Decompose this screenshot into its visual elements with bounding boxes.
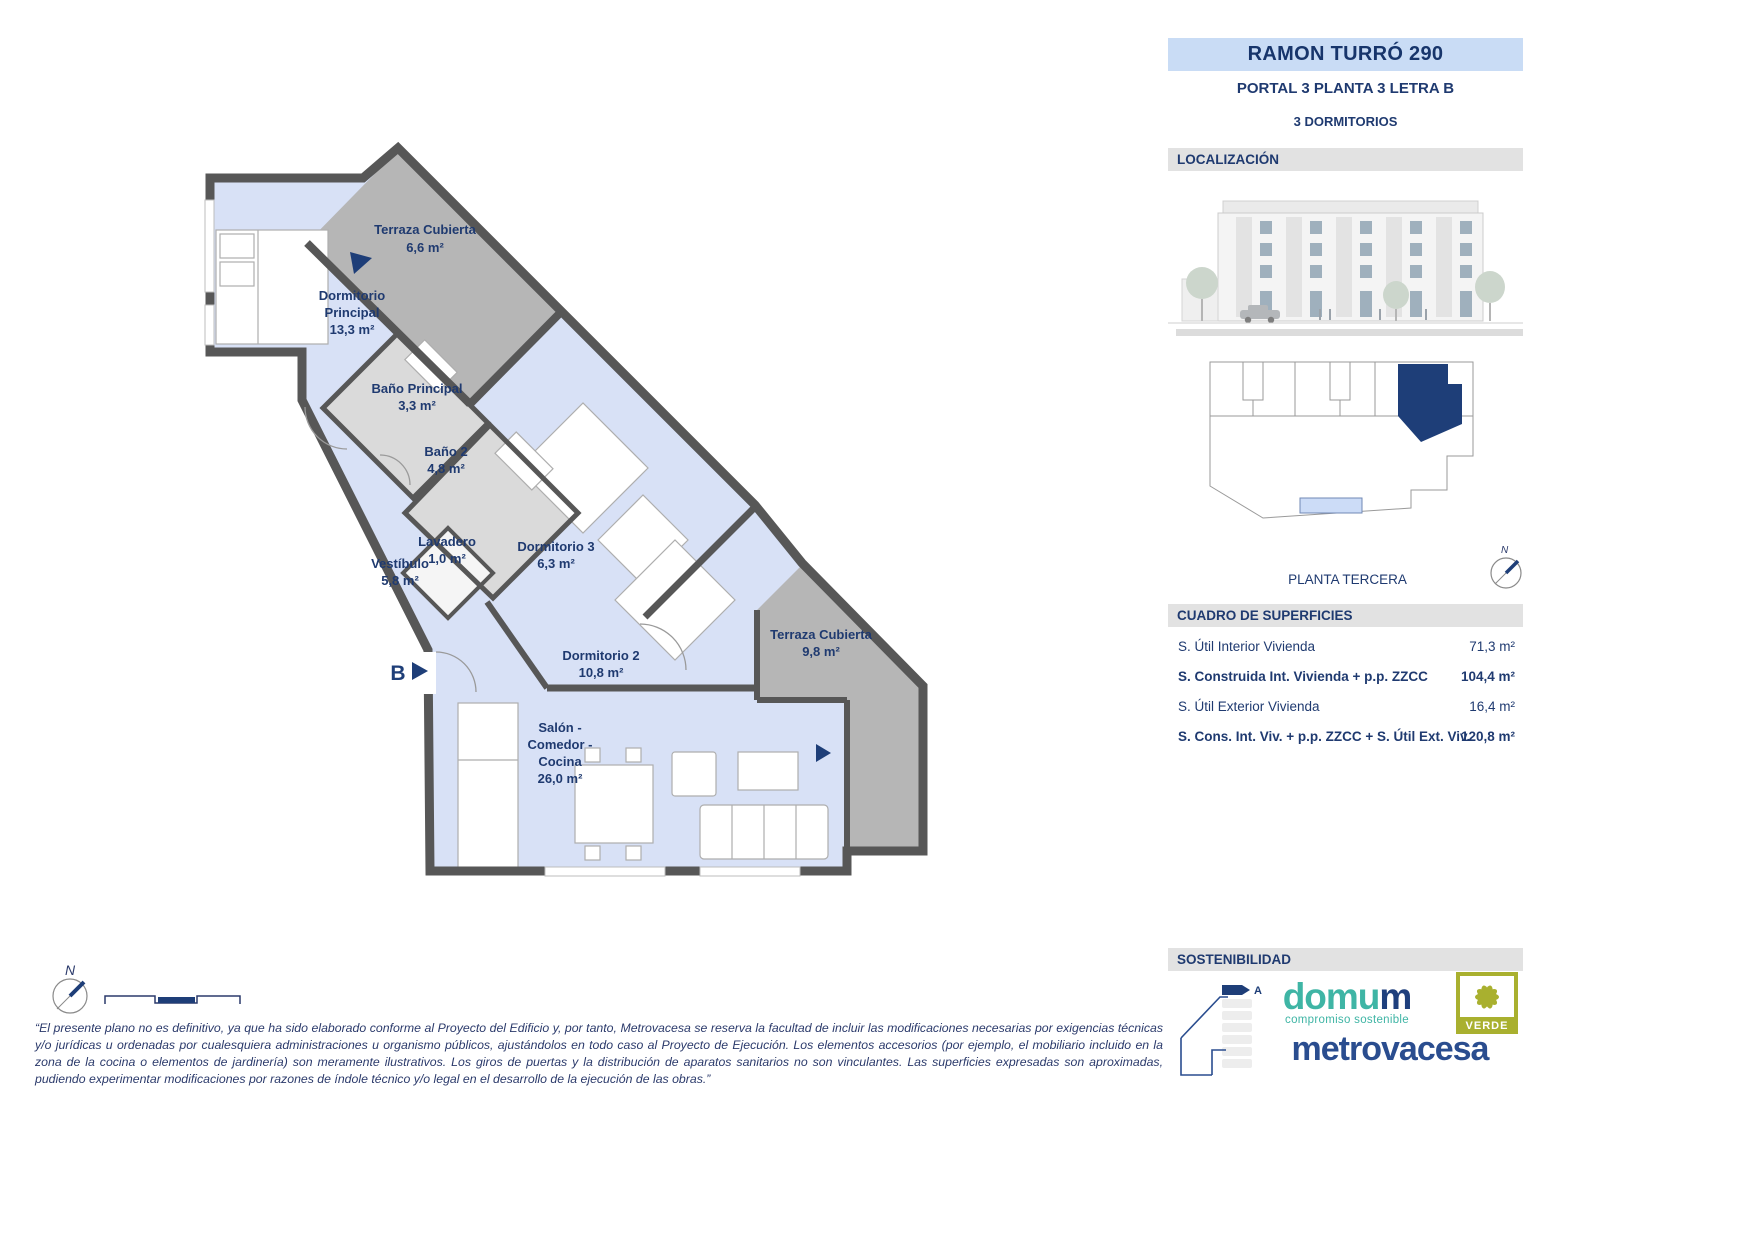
room-label: Terraza Cubierta <box>770 627 872 642</box>
page-title: RAMON TURRÓ 290 <box>1168 38 1523 71</box>
section-header-localizacion: LOCALIZACIÓN <box>1168 148 1523 171</box>
surface-label: S. Útil Interior Vivienda <box>1178 632 1315 662</box>
room-label: Dormitorio <box>319 288 386 303</box>
room-label: Terraza Cubierta <box>374 222 476 237</box>
room-label: Cocina <box>538 754 582 769</box>
surface-label: S. Cons. Int. Viv. + p.p. ZZCC + S. Útil… <box>1178 722 1470 752</box>
room-label: 5,8 m² <box>381 573 419 588</box>
surface-row: S. Útil Exterior Vivienda 16,4 m² <box>1168 692 1523 722</box>
surface-value: 16,4 m² <box>1469 692 1515 722</box>
room-label: 1,0 m² <box>428 551 466 566</box>
room-label: Dormitorio 3 <box>517 539 594 554</box>
verde-label: VERDE <box>1466 1020 1509 1032</box>
domum-logo: domum <box>1272 980 1422 1014</box>
rating-arrow-a <box>1222 985 1250 995</box>
entrance-letter: B <box>390 662 405 685</box>
floor-level-label: PLANTA TERCERA <box>1205 572 1490 587</box>
room-label: 10,8 m² <box>579 665 624 680</box>
verde-certification-badge: VERDE <box>1456 972 1518 1034</box>
room-label: 9,8 m² <box>802 644 840 659</box>
domum-logo-teal: domu <box>1283 976 1380 1017</box>
portal-floor-letter-line: PORTAL 3 PLANTA 3 LETRA B <box>1168 80 1523 97</box>
compass-north-label: N <box>65 962 76 978</box>
domum-tagline: compromiso sostenible <box>1272 1014 1422 1026</box>
building-render-illustration <box>1168 183 1523 346</box>
room-label: Comedor - <box>528 737 593 752</box>
surface-row: S. Cons. Int. Viv. + p.p. ZZCC + S. Útil… <box>1168 722 1523 752</box>
surface-label: S. Útil Exterior Vivienda <box>1178 692 1320 722</box>
surface-value: 71,3 m² <box>1469 632 1515 662</box>
room-label: Baño Principal <box>371 381 462 396</box>
panel-compass: N <box>1485 543 1530 593</box>
floorplan-sheet: B Terraza Cubierta 6,6 m² Dormitorio Pri… <box>0 0 1755 1241</box>
room-label: Principal <box>325 305 380 320</box>
key-plan-pool <box>1300 498 1362 513</box>
room-label: Vestíbulo <box>371 556 429 571</box>
room-label: Dormitorio 2 <box>562 648 639 663</box>
bedrooms-line: 3 DORMITORIOS <box>1168 114 1523 129</box>
scale-bar <box>105 996 240 1004</box>
section-header-sostenibilidad: SOSTENIBILIDAD <box>1168 948 1523 971</box>
surface-value: 120,8 m² <box>1461 722 1515 752</box>
rating-letter: A <box>1254 985 1262 997</box>
plan-compass: N <box>35 955 285 1020</box>
surface-row: S. Útil Interior Vivienda 71,3 m² <box>1168 632 1523 662</box>
room-label: 4,8 m² <box>427 461 465 476</box>
metrovacesa-logo: metrovacesa <box>1255 1030 1525 1069</box>
room-label: Salón - <box>538 720 581 735</box>
surface-label: S. Construida Int. Vivienda + p.p. ZZCC <box>1178 662 1428 692</box>
room-label: 13,3 m² <box>330 322 375 337</box>
room-label: Baño 2 <box>424 444 467 459</box>
room-label: 6,6 m² <box>406 240 444 255</box>
disclaimer-text: “El presente plano no es definitivo, ya … <box>35 1020 1163 1088</box>
domum-logo-navy: m <box>1379 976 1411 1017</box>
floor-plan: B Terraza Cubierta 6,6 m² Dormitorio Pri… <box>0 130 1160 1050</box>
room-label: 6,3 m² <box>537 556 575 571</box>
compass-north-label: N <box>1501 545 1509 556</box>
surface-row: S. Construida Int. Vivienda + p.p. ZZCC … <box>1168 662 1523 692</box>
surface-value: 104,4 m² <box>1461 662 1515 692</box>
room-label: 26,0 m² <box>538 771 583 786</box>
room-label: 3,3 m² <box>398 398 436 413</box>
site-key-plan <box>1205 358 1490 536</box>
section-header-superficies: CUADRO DE SUPERFICIES <box>1168 604 1523 627</box>
room-label: Lavadero <box>418 534 476 549</box>
